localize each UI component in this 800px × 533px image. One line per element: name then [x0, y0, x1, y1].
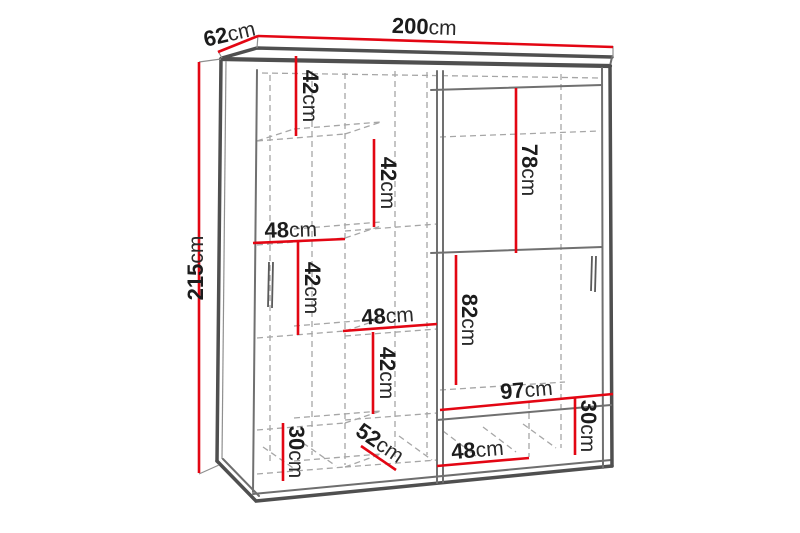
- dimension-label-right-section-width: 97cm: [499, 375, 553, 404]
- dimension-label-mid-shelf-width: 48cm: [360, 301, 414, 330]
- dimension-lines: [199, 36, 613, 481]
- extension-lines: [199, 35, 613, 474]
- left-door-edge: [253, 70, 257, 492]
- dimension-label-bottom-shelf-width: 48cm: [450, 435, 504, 464]
- dimension-label-mid-left-shelf: 42cm: [300, 262, 325, 314]
- dimension-label-lower-mid-shelf: 42cm: [375, 347, 400, 399]
- dimension-label-right-upper-section: 78cm: [517, 144, 542, 196]
- left-edge-inner: [222, 61, 226, 459]
- dimension-labels: 62cm 200cm 215cm 42cm 42cm 48cm 42cm 48c…: [183, 13, 601, 478]
- left-edge: [217, 59, 221, 461]
- dimension-label-total-width: 200cm: [391, 13, 457, 40]
- dimension-label-bottom-right-shelf: 30cm: [576, 400, 601, 452]
- dimension-label-total-depth: 62cm: [201, 16, 258, 52]
- dimension-label-upper-mid-shelf: 42cm: [376, 157, 401, 209]
- diagram-canvas: 62cm 200cm 215cm 42cm 42cm 48cm 42cm 48c…: [0, 0, 800, 533]
- dimension-label-bottom-left-shelf: 30cm: [284, 426, 309, 478]
- dimension-label-left-shelf-width: 48cm: [264, 216, 317, 243]
- dimension-label-top-left-shelf: 42cm: [298, 70, 323, 122]
- base-front-edge: [217, 461, 612, 501]
- dimension-label-right-lower-section: 82cm: [457, 294, 482, 346]
- top-back-edge: [222, 48, 612, 58]
- right-door-handle: [591, 256, 596, 292]
- right-door-edge: [602, 68, 603, 468]
- dimension-label-total-height: 215cm: [183, 236, 208, 301]
- top-front-edge: [221, 59, 610, 66]
- wardrobe-dimension-diagram: 62cm 200cm 215cm 42cm 42cm 48cm 42cm 48c…: [0, 0, 800, 533]
- wardrobe-outline: [217, 48, 612, 501]
